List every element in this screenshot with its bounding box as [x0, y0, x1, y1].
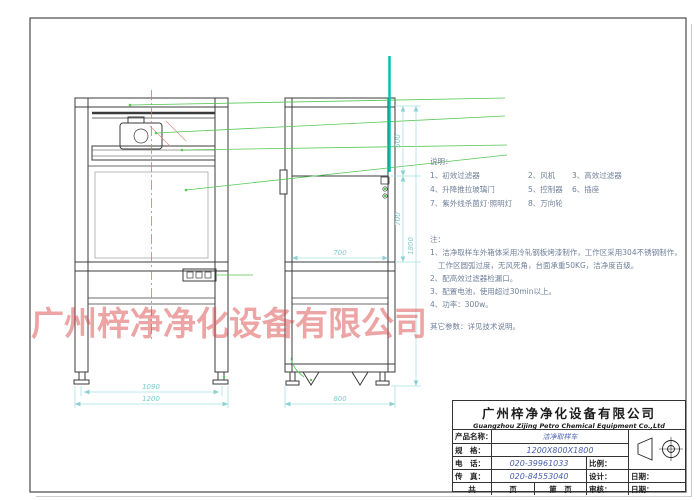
- pages-no-label: 第 页: [534, 483, 586, 495]
- caster-wheel: [303, 372, 319, 385]
- projection-symbol: [628, 430, 685, 469]
- panel-button: [196, 272, 202, 278]
- product-name-label: 产品名称：: [453, 430, 491, 443]
- side-right-foot: [380, 372, 385, 381]
- title-block-header: 广州梓净净化设备有限公司 Guangzhou Zijing Petro Chem…: [453, 403, 685, 430]
- note-line: 4、功率：300w。: [430, 298, 682, 311]
- parts-legend: 说明： 1、初效过滤器 2、风机 3、高效过滤器 4、升降推拉玻璃门 5、控制器…: [430, 155, 622, 211]
- legend-item: 7、紫外线杀菌灯·照明灯: [430, 197, 528, 211]
- audit-label: 审核：: [586, 482, 628, 495]
- pages-unit-label: 页: [491, 483, 534, 495]
- front-right-foot: [218, 372, 224, 380]
- panel-button: [187, 272, 193, 278]
- notes-title: 注：: [430, 233, 682, 246]
- tel-value: 020-39961033: [491, 456, 586, 469]
- notes-footer: 其它参数：详见技术说明。: [430, 320, 682, 333]
- pages-row: 共 页 第 页: [453, 482, 586, 495]
- legend-row: 7、紫外线杀菌灯·照明灯 8、万向轮: [430, 197, 622, 211]
- panel-button: [205, 272, 211, 278]
- dim-front-feet-width: 1090: [142, 383, 160, 391]
- note-line: 工作区圆弧过度，无风死角，台面承重50KG，洁净度百级。: [430, 259, 682, 272]
- fax-value: 020-84553040: [491, 469, 586, 482]
- legend-item: 2、风机: [528, 169, 572, 183]
- note-line: 3、配置电池，使用超过30min以上。: [430, 285, 682, 298]
- title-block: 广州梓净净化设备有限公司 Guangzhou Zijing Petro Chem…: [452, 400, 686, 492]
- tel-label: 电 话：: [453, 456, 491, 469]
- dimension-lines: [75, 106, 421, 408]
- design-label: 设计：: [586, 469, 628, 482]
- hepa-filter: [92, 146, 215, 160]
- spec-value: 1200X800X1800: [491, 443, 628, 456]
- legend-item: 3、高效过滤器: [572, 169, 622, 183]
- side-left-foot: [290, 372, 295, 381]
- bottom-frame: [285, 364, 395, 372]
- dim-side-opening-height: 700: [394, 212, 402, 226]
- dimension-text: 1090 1200 800 700 500 700 1800: [142, 134, 415, 403]
- dim-side-inner-depth: 700: [333, 249, 347, 257]
- legend-item: 8、万向轮: [528, 197, 572, 211]
- company-watermark: 广州梓净净化设备有限公司: [31, 297, 431, 345]
- caster-wheel: [352, 372, 368, 385]
- side-work-table: [285, 262, 395, 271]
- product-name-value: 洁净取样车: [491, 430, 628, 443]
- dim-side-top-height: 500: [394, 134, 402, 148]
- dim-front-width: 1200: [142, 395, 160, 403]
- company-name-cn: 广州梓净净化设备有限公司: [453, 403, 685, 422]
- fax-label: 传 真：: [453, 469, 491, 482]
- note-line: 2、配高效过滤器检漏口。: [430, 272, 682, 285]
- note-line: 1、洁净取样车外箱体采用冷轧钢板烤漆制作，工作区采用304不锈钢制作，: [430, 246, 682, 259]
- company-name-en: Guangzhou Zijing Petro Chemical Equipmen…: [453, 422, 685, 430]
- title-block-grid: 产品名称： 洁净取样车 规 格： 1200X800X1800 电 话： 0: [453, 430, 685, 495]
- legend-title: 说明：: [430, 155, 622, 169]
- date2-label: 日期：: [628, 482, 685, 495]
- technical-notes: 注： 1、洁净取样车外箱体采用冷轧钢板烤漆制作，工作区采用304不锈钢制作， 工…: [430, 233, 682, 333]
- dim-side-depth: 800: [333, 395, 347, 403]
- legend-item: 1、初效过滤器: [430, 169, 528, 183]
- door-handle: [280, 170, 287, 194]
- spec-label: 规 格：: [453, 443, 491, 456]
- legend-item: 6、插座: [572, 183, 599, 197]
- dim-side-total-height: 1800: [407, 237, 415, 255]
- pages-total-label: 共: [453, 483, 491, 495]
- date-label: 日期：: [628, 469, 685, 482]
- legend-row: 1、初效过滤器 2、风机 3、高效过滤器: [430, 169, 622, 183]
- legend-row: 4、升降推拉玻璃门 5、控制器 6、插座: [430, 183, 622, 197]
- scale-label: 比例：: [586, 456, 628, 469]
- front-left-foot: [79, 372, 85, 380]
- fan-unit: [120, 123, 162, 149]
- legend-item: 4、升降推拉玻璃门: [430, 183, 528, 197]
- first-angle-projection-icon: [630, 431, 685, 468]
- drawing-sheet: 1090 1200 800 700 500 700 1800 广州梓净净化设备有…: [0, 0, 700, 500]
- legend-item: 5、控制器: [528, 183, 572, 197]
